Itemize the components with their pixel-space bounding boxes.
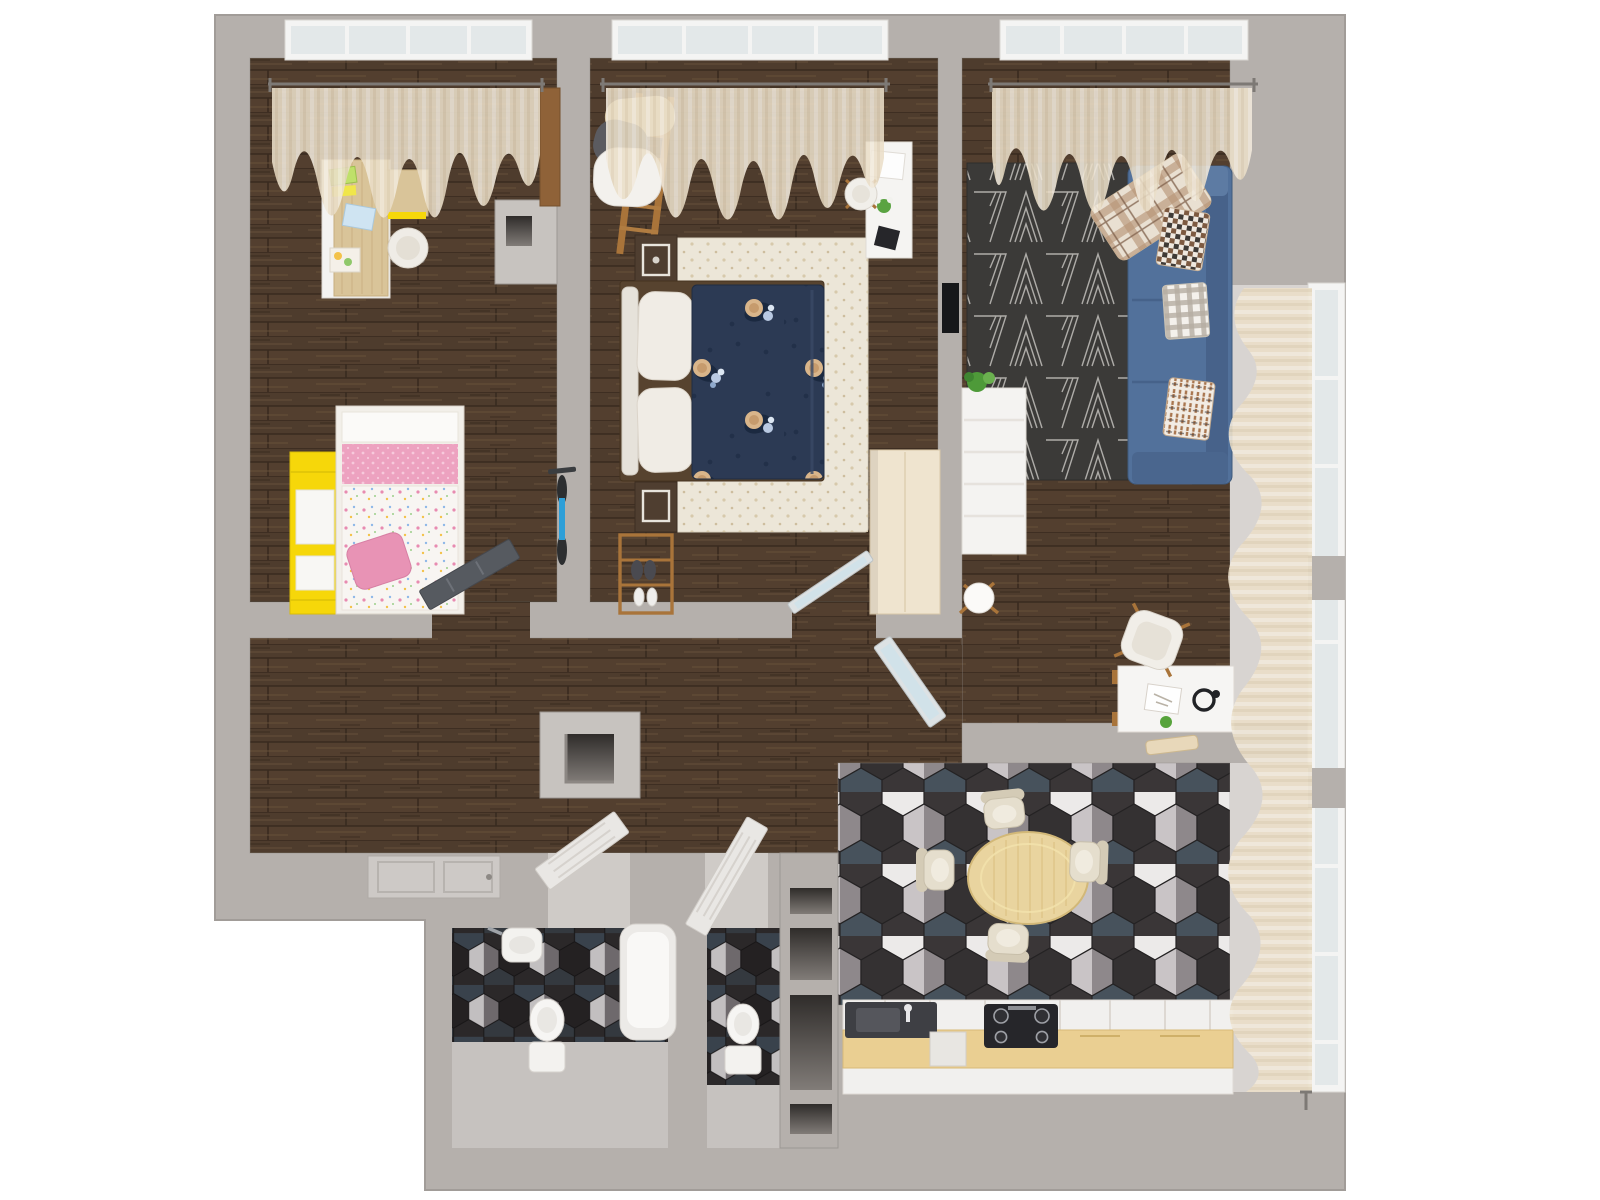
tv	[942, 283, 959, 333]
dining-chair-bottom	[985, 923, 1031, 963]
dining-chair-top	[980, 788, 1028, 830]
kids-bed-pillow	[342, 412, 458, 442]
shaft-niche-2	[790, 928, 832, 980]
side-window-divider-2	[1308, 768, 1345, 808]
wardrobe	[870, 450, 940, 614]
bed-pillow-1	[636, 291, 693, 381]
kids-wall-board	[540, 88, 560, 206]
floor-plan-svg	[0, 0, 1600, 1200]
bathtub	[620, 924, 676, 1040]
headboard	[622, 287, 638, 475]
bed-pillow-2	[637, 387, 694, 473]
sofa-arm-bottom	[1132, 452, 1228, 484]
kids-desk-drawing	[342, 204, 375, 231]
dining-chair-left	[916, 848, 954, 892]
kids-window	[285, 20, 532, 60]
kitchen-counter	[843, 1000, 1233, 1094]
nightstand-bottom	[635, 482, 677, 532]
bookshelf	[962, 372, 1026, 554]
dining-table	[968, 832, 1088, 924]
kids-shelf-cell-1	[296, 490, 334, 544]
hallway-column-duct	[566, 734, 614, 782]
entrance-door	[368, 856, 500, 898]
pillow-gingham	[1162, 283, 1210, 340]
utility-shaft	[780, 853, 838, 1148]
shaft-niche-1	[790, 888, 832, 914]
double-bed	[620, 281, 824, 481]
bedroom-window	[612, 20, 888, 60]
bedroom-door-opening	[792, 602, 876, 640]
side-window-divider-1	[1308, 556, 1345, 600]
kids-cabinet-yellow-trim	[388, 212, 426, 219]
side-window	[1308, 283, 1345, 1092]
kids-shelf-cell-2	[296, 556, 334, 590]
desk-plant	[1160, 716, 1172, 728]
dishwasher	[930, 1032, 966, 1066]
shaft-niche-4	[790, 1104, 832, 1134]
shaft-niche-3	[790, 995, 832, 1090]
dining-chair-right	[1069, 839, 1109, 884]
kids-shelf	[290, 452, 340, 614]
living-window	[1000, 20, 1248, 60]
nightstand-top	[635, 235, 677, 287]
pillow-knit	[1163, 377, 1216, 440]
pillow-checkered	[1156, 207, 1211, 271]
kids-office-chair	[388, 228, 428, 268]
wall-niche-opening	[506, 216, 532, 246]
gas-stove	[984, 1004, 1058, 1048]
floor-plan	[0, 0, 1600, 1200]
desk-paper	[1144, 684, 1181, 714]
